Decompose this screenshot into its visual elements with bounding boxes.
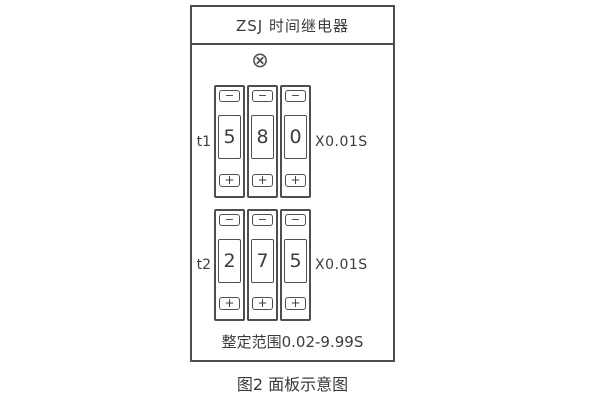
t2-multiplier-label: X0.01S (315, 257, 368, 273)
decrement-button[interactable]: − (285, 214, 306, 226)
t2-digit-wheel-tens: − 7 + (247, 209, 278, 321)
increment-button[interactable]: + (219, 174, 240, 187)
timer-row-t2: t2 − 2 + − 7 + − 5 + (192, 209, 393, 321)
t1-multiplier-label: X0.01S (315, 134, 368, 150)
digit-display: 8 (251, 115, 274, 159)
t1-digit-wheel-ones: − 0 + (280, 85, 311, 198)
setting-range-text: 整定范围0.02-9.99S (192, 331, 393, 352)
t1-digit-wheel-group: − 5 + − 8 + − 0 + (214, 85, 311, 198)
timer-t1-label: t1 (192, 134, 214, 150)
digit-display: 7 (251, 239, 274, 283)
digit-display: 5 (218, 115, 241, 159)
t1-digit-wheel-hundreds: − 5 + (214, 85, 245, 198)
increment-button[interactable]: + (252, 174, 273, 187)
panel-title-bar: ZSJ 时间继电器 (192, 7, 393, 45)
panel-body: ⊗ t1 − 5 + − 8 + − (192, 45, 393, 358)
increment-button[interactable]: + (219, 297, 240, 310)
timer-t2-label: t2 (192, 257, 214, 273)
figure-caption: 图2 面板示意图 (190, 371, 395, 395)
increment-button[interactable]: + (285, 174, 306, 187)
t2-digit-wheel-hundreds: − 2 + (214, 209, 245, 321)
t2-digit-wheel-ones: − 5 + (280, 209, 311, 321)
decrement-button[interactable]: − (252, 214, 273, 226)
digit-display: 0 (284, 115, 307, 159)
digit-display: 5 (284, 239, 307, 283)
figure-canvas: ZSJ 时间继电器 ⊗ t1 − 5 + − 8 + (0, 0, 600, 400)
digit-display: 2 (218, 239, 241, 283)
decrement-button[interactable]: − (285, 90, 306, 102)
relay-panel: ZSJ 时间继电器 ⊗ t1 − 5 + − 8 + (190, 5, 395, 362)
t2-digit-wheel-group: − 2 + − 7 + − 5 + (214, 209, 311, 321)
decrement-button[interactable]: − (252, 90, 273, 102)
decrement-button[interactable]: − (219, 214, 240, 226)
t1-digit-wheel-tens: − 8 + (247, 85, 278, 198)
indicator-lamp-icon: ⊗ (246, 50, 274, 71)
timer-row-t1: t1 − 5 + − 8 + − 0 + (192, 85, 393, 198)
increment-button[interactable]: + (285, 297, 306, 310)
panel-title: ZSJ 时间继电器 (236, 15, 349, 36)
decrement-button[interactable]: − (219, 90, 240, 102)
increment-button[interactable]: + (252, 297, 273, 310)
